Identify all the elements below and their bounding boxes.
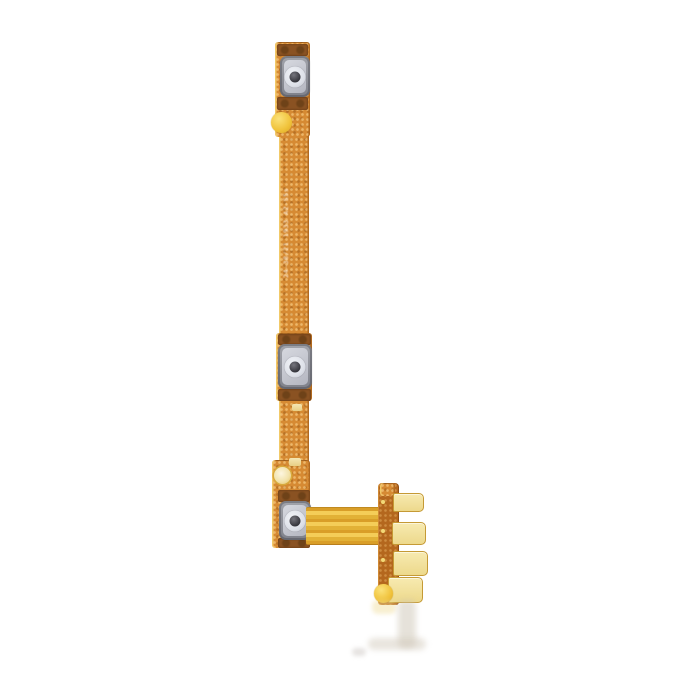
dome-switch-center xyxy=(290,361,301,372)
photo-shadow xyxy=(368,638,426,650)
dome-switch-center xyxy=(290,71,301,82)
pale-circle-pad-lower xyxy=(274,467,291,484)
dome-switch-middle xyxy=(278,344,312,389)
gold-circle-pad-top xyxy=(271,112,292,133)
product-photo-flex-cable: 24-38/21 1933 A2-S5s xyxy=(0,0,700,700)
contact-dot xyxy=(381,558,385,562)
connector-finger-2 xyxy=(392,522,426,545)
dome-switch-top xyxy=(280,56,310,97)
connector-finger-3 xyxy=(393,551,428,576)
contact-dot xyxy=(381,500,385,504)
solder-band xyxy=(277,97,308,110)
ribbon-printed-code: 24-38/21 1933 A2-S5s xyxy=(283,150,307,315)
photo-shadow xyxy=(372,600,396,614)
connector-finger-1 xyxy=(393,493,424,512)
solder-band xyxy=(278,389,311,401)
dome-switch-center xyxy=(290,515,301,526)
solder-mark xyxy=(289,458,301,466)
solder-mark xyxy=(292,404,302,411)
solder-band xyxy=(277,44,308,56)
contact-dot xyxy=(381,529,385,533)
photo-shadow xyxy=(352,648,366,656)
gold-jumper-ribbon xyxy=(306,507,386,545)
